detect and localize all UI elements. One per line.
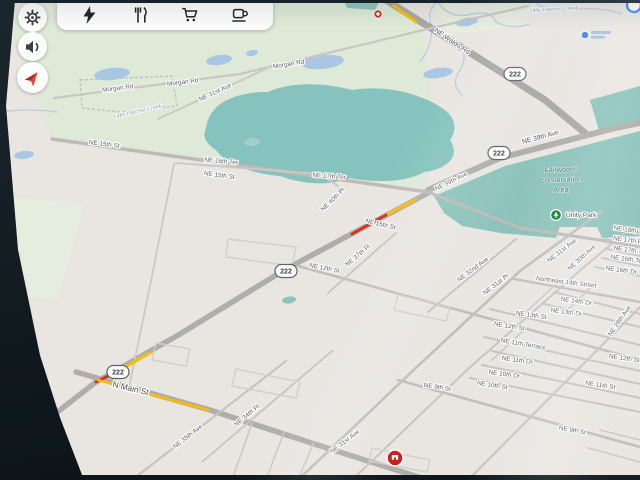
volume-button[interactable] [18, 32, 47, 61]
route-shield-222: 222 [107, 366, 129, 379]
closure-marker[interactable] [374, 10, 382, 18]
svg-text:222: 222 [280, 269, 292, 276]
volume-icon [24, 38, 42, 56]
poi-red-marker[interactable] [387, 450, 403, 466]
navigation-arrow-icon [23, 68, 43, 88]
screen-bezel-bottom [0, 475, 640, 480]
map-canvas[interactable]: Morgan RdMorgan RdMorgan RdNE 31st AveLi… [0, 0, 640, 480]
ev-charging-icon[interactable] [77, 4, 101, 26]
map-label: Area [553, 185, 568, 195]
svg-text:222: 222 [112, 370, 124, 377]
restaurants-icon[interactable] [128, 4, 152, 26]
recenter-navigation-button[interactable] [17, 62, 48, 93]
svg-text:222: 222 [493, 151, 505, 158]
svg-text:222: 222 [509, 72, 521, 79]
map-label: Fairwoods [544, 164, 578, 174]
settings-gear-icon [23, 8, 42, 27]
screen-bezel-top [0, 0, 640, 3]
map-label: Conservation [540, 174, 583, 184]
map-label: Unity Park [566, 212, 597, 219]
grocery-cart-icon[interactable] [178, 4, 202, 26]
settings-button[interactable] [18, 3, 47, 32]
route-shield-222: 222 [488, 147, 510, 160]
route-shield-222: 222 [504, 68, 526, 81]
park-marker[interactable] [551, 210, 562, 221]
car-display: Morgan RdMorgan RdMorgan RdNE 31st AveLi… [0, 0, 640, 480]
route-shield-222: 222 [275, 265, 297, 278]
poi-category-toolbar [57, 0, 273, 30]
coffee-icon[interactable] [229, 4, 253, 26]
